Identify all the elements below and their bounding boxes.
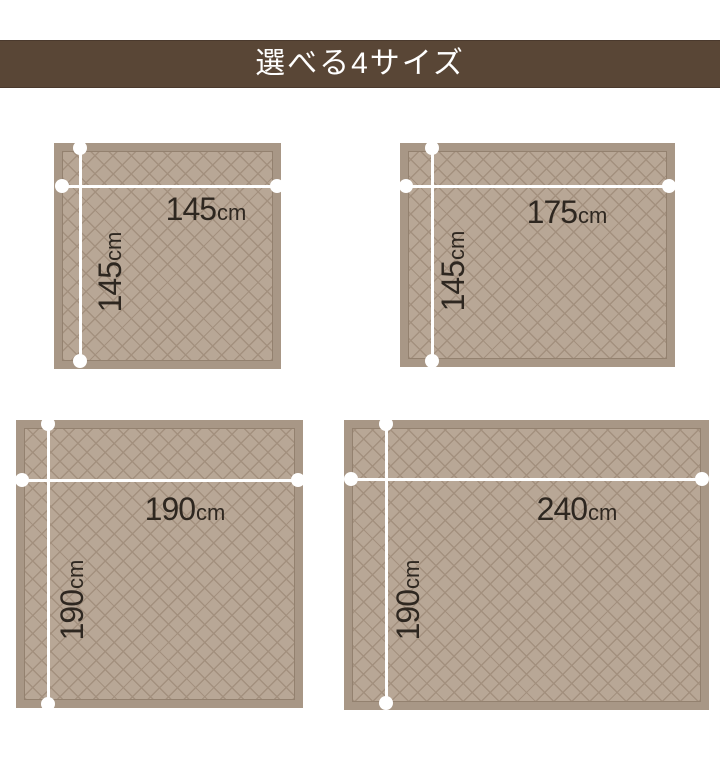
dimension-endpoint-dot <box>55 179 69 193</box>
width-value: 175 <box>527 194 577 230</box>
unit-label: cm <box>217 200 246 225</box>
width-label: 190cm <box>145 493 226 525</box>
height-dimension-line <box>431 148 434 361</box>
width-label: 240cm <box>537 493 618 525</box>
dimension-endpoint-dot <box>399 179 413 193</box>
width-dimension-line <box>22 479 298 482</box>
dimension-endpoint-dot <box>379 417 393 431</box>
rug-190x190: 190cm 190cm <box>16 420 303 708</box>
unit-label: cm <box>63 560 88 589</box>
dimension-endpoint-dot <box>41 417 55 431</box>
rug-175x145: 175cm 145cm <box>400 143 675 367</box>
height-label: 190cm <box>56 560 88 641</box>
height-dimension-line <box>385 424 388 703</box>
rug-145x145: 145cm 145cm <box>54 143 281 369</box>
dimension-endpoint-dot <box>291 473 305 487</box>
dimension-endpoint-dot <box>270 179 284 193</box>
dimension-endpoint-dot <box>344 472 358 486</box>
width-label: 145cm <box>166 193 247 225</box>
unit-label: cm <box>444 231 469 260</box>
dimension-endpoint-dot <box>662 179 676 193</box>
size-banner: 選べる4サイズ <box>0 40 720 88</box>
height-value: 190 <box>54 590 90 640</box>
dimension-endpoint-dot <box>41 697 55 711</box>
dimension-endpoint-dot <box>73 354 87 368</box>
height-label: 145cm <box>437 231 469 312</box>
height-label: 190cm <box>392 560 424 641</box>
width-value: 145 <box>166 191 216 227</box>
height-dimension-line <box>79 148 82 361</box>
unit-label: cm <box>588 500 617 525</box>
width-dimension-line <box>406 185 669 188</box>
height-value: 190 <box>390 590 426 640</box>
dimension-endpoint-dot <box>425 354 439 368</box>
width-label: 175cm <box>527 196 608 228</box>
height-dimension-line <box>47 424 50 704</box>
dimension-endpoint-dot <box>379 696 393 710</box>
banner-title: 選べる4サイズ <box>255 49 465 79</box>
dimension-endpoint-dot <box>425 141 439 155</box>
height-value: 145 <box>435 261 471 311</box>
unit-label: cm <box>399 560 424 589</box>
unit-label: cm <box>196 500 225 525</box>
size-chart-page: 選べる4サイズ 145cm 145cm 175cm 145cm <box>0 0 720 779</box>
height-value: 145 <box>92 262 128 312</box>
dimension-endpoint-dot <box>15 473 29 487</box>
width-dimension-line <box>351 478 702 481</box>
rug-240x190: 240cm 190cm <box>344 420 709 710</box>
dimension-endpoint-dot <box>695 472 709 486</box>
unit-label: cm <box>101 232 126 261</box>
width-dimension-line <box>62 185 277 188</box>
width-value: 240 <box>537 491 587 527</box>
unit-label: cm <box>578 203 607 228</box>
height-label: 145cm <box>94 232 126 313</box>
dimension-endpoint-dot <box>73 141 87 155</box>
width-value: 190 <box>145 491 195 527</box>
